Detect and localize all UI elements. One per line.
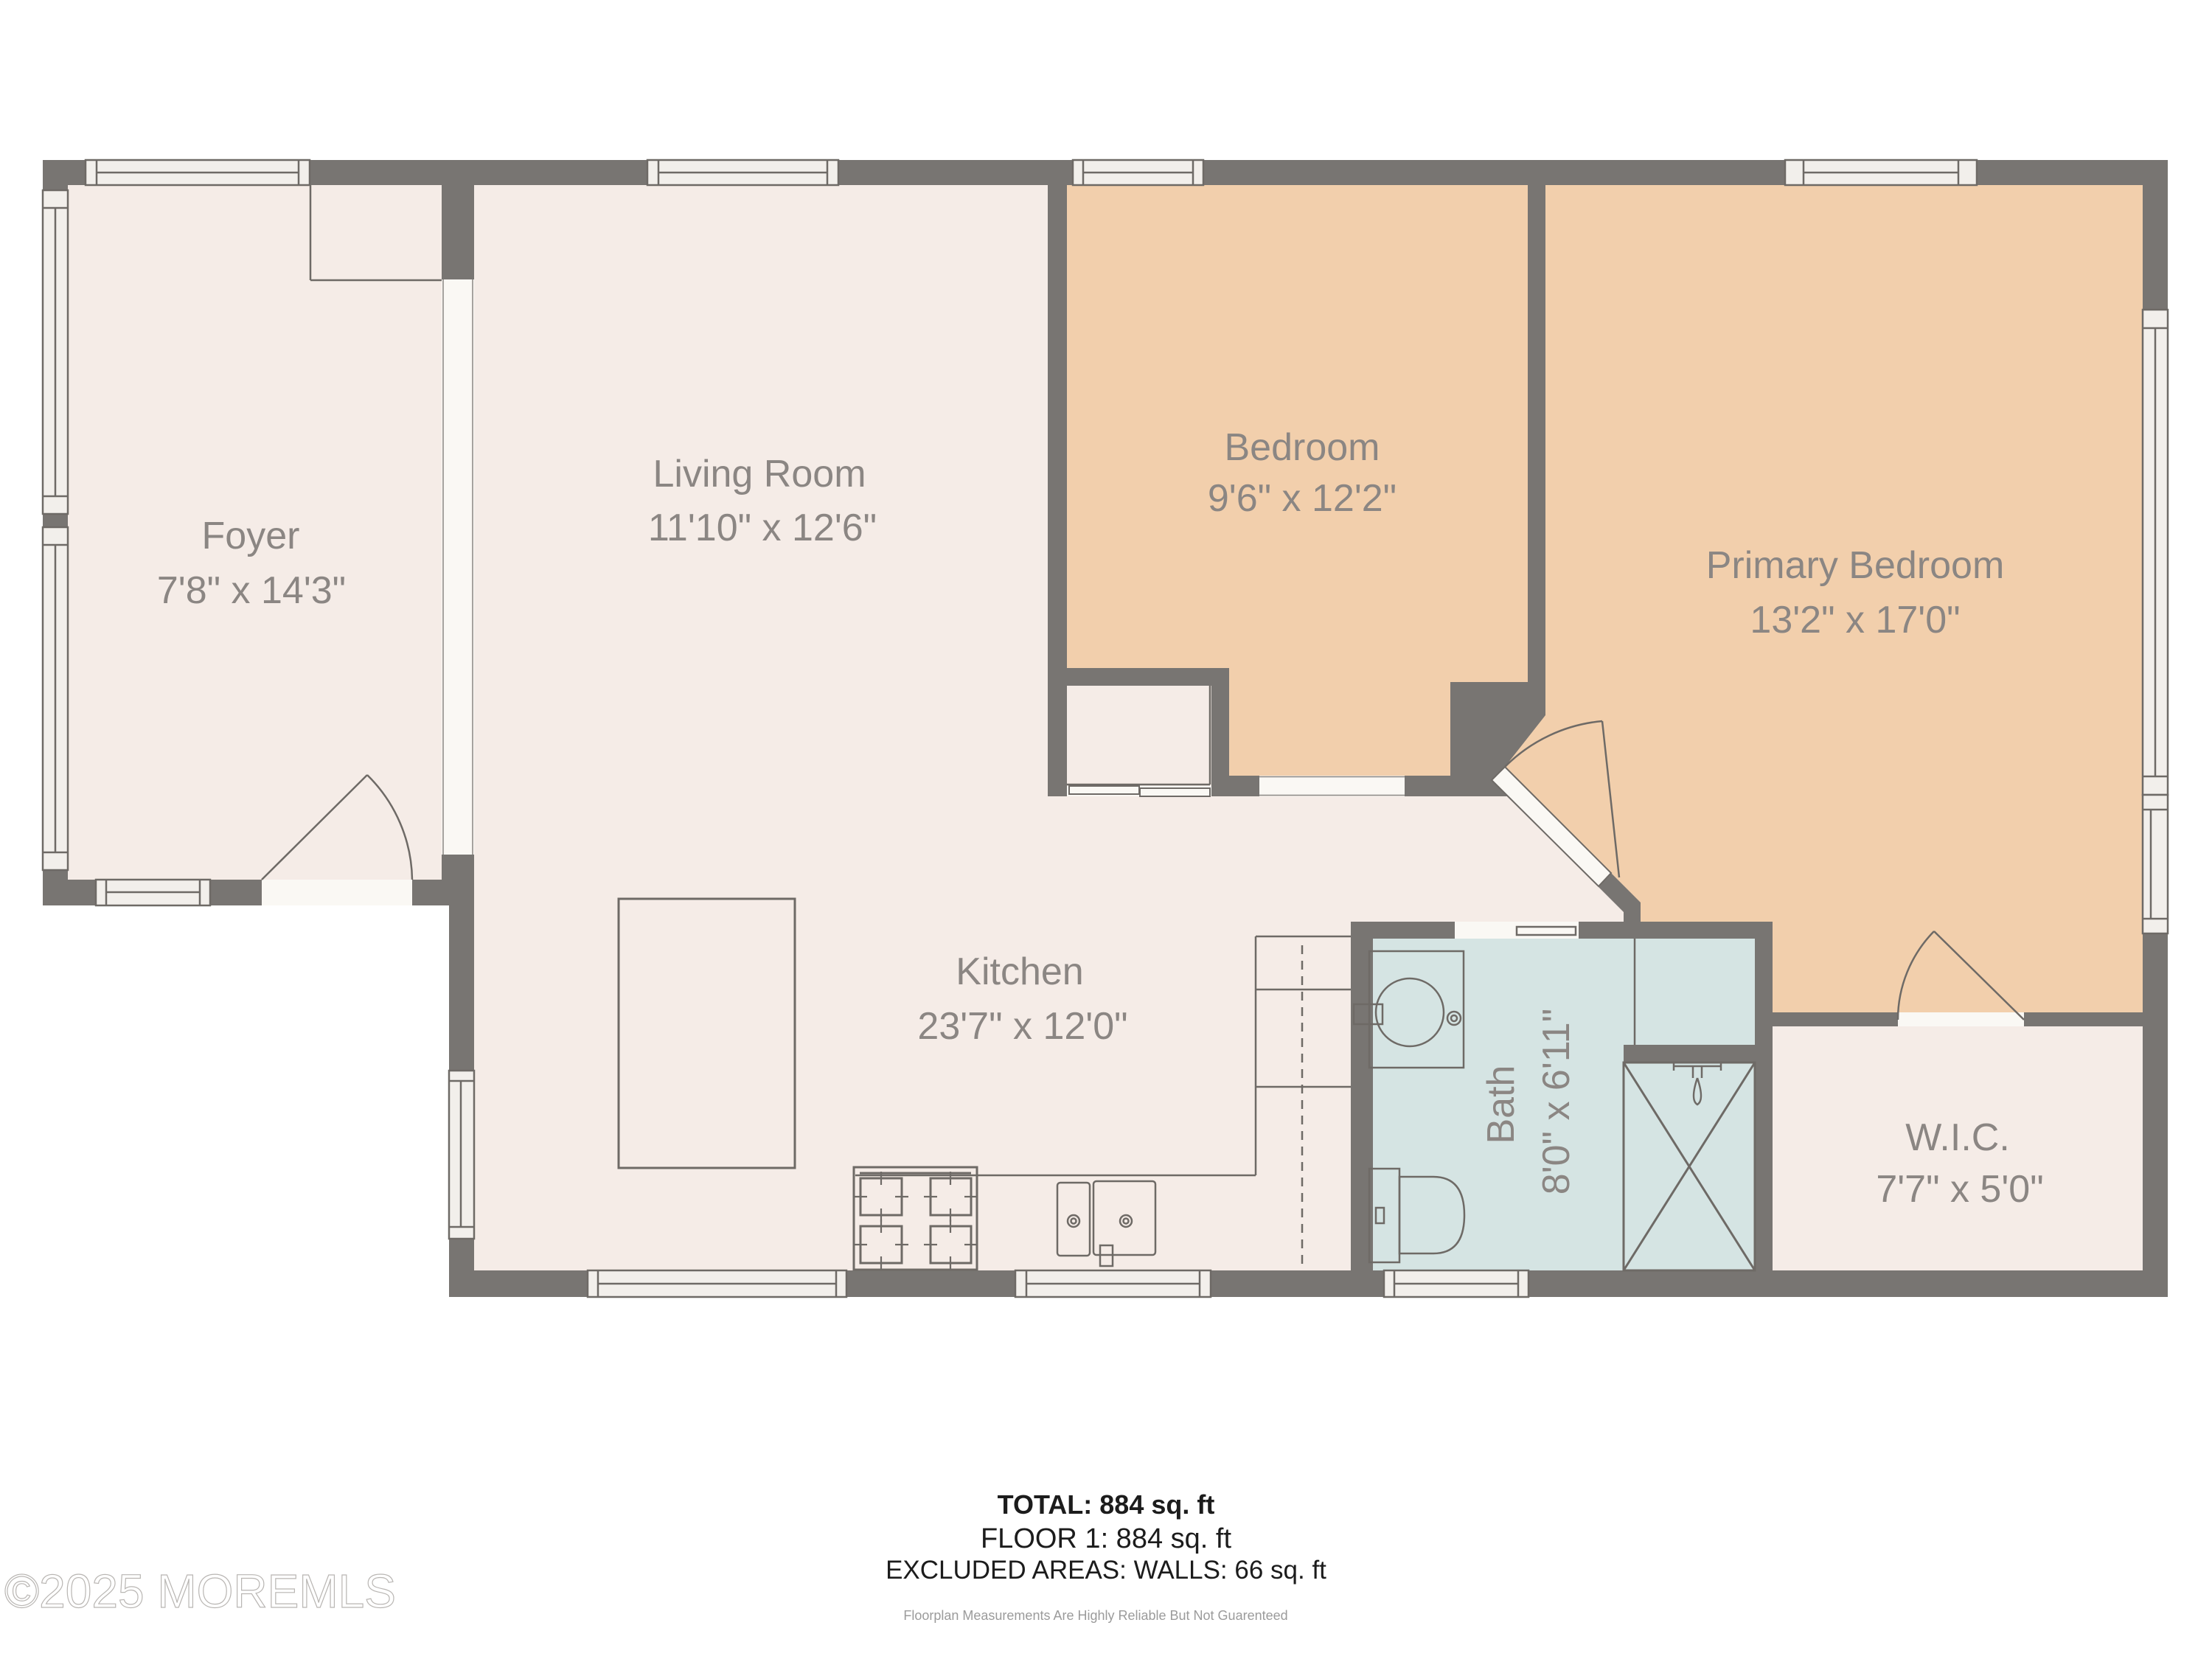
svg-text:8'0" x 6'11": 8'0" x 6'11" <box>1535 1009 1578 1194</box>
svg-text:9'6" x 12'2": 9'6" x 12'2" <box>1208 477 1397 520</box>
svg-text:Living Room: Living Room <box>653 453 866 495</box>
svg-text:Primary Bedroom: Primary Bedroom <box>1706 544 2005 587</box>
svg-text:TOTAL: 884 sq. ft: TOTAL: 884 sq. ft <box>998 1489 1215 1520</box>
svg-text:7'8" x 14'3": 7'8" x 14'3" <box>157 569 346 612</box>
svg-text:EXCLUDED AREAS: WALLS: 66 sq.: EXCLUDED AREAS: WALLS: 66 sq. ft <box>886 1556 1326 1585</box>
svg-text:11'10" x 12'6": 11'10" x 12'6" <box>648 507 877 549</box>
svg-text:©2025 MOREMLS: ©2025 MOREMLS <box>4 1565 396 1618</box>
svg-text:Foyer: Foyer <box>202 515 300 557</box>
svg-text:13'2" x 17'0": 13'2" x 17'0" <box>1750 599 1960 641</box>
svg-text:FLOOR 1: 884 sq. ft: FLOOR 1: 884 sq. ft <box>981 1523 1231 1554</box>
svg-text:7'7" x 5'0": 7'7" x 5'0" <box>1876 1168 2043 1211</box>
svg-text:Kitchen: Kitchen <box>956 950 1083 993</box>
svg-text:Bath: Bath <box>1480 1065 1523 1144</box>
svg-text:23'7" x 12'0": 23'7" x 12'0" <box>917 1005 1127 1048</box>
svg-text:Floorplan Measurements Are Hig: Floorplan Measurements Are Highly Reliab… <box>903 1608 1287 1623</box>
svg-text:Bedroom: Bedroom <box>1225 426 1380 469</box>
svg-text:W.I.C.: W.I.C. <box>1905 1116 2010 1159</box>
